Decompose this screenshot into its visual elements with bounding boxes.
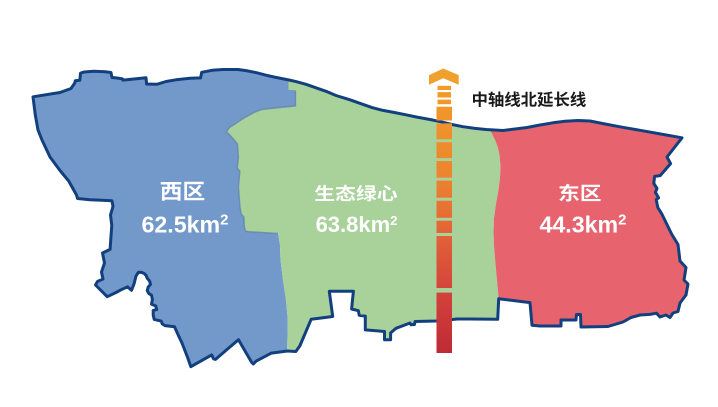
svg-text:63.8km2: 63.8km2: [316, 212, 398, 237]
svg-text:44.3km2: 44.3km2: [540, 212, 627, 238]
svg-text:62.5km2: 62.5km2: [142, 212, 229, 238]
